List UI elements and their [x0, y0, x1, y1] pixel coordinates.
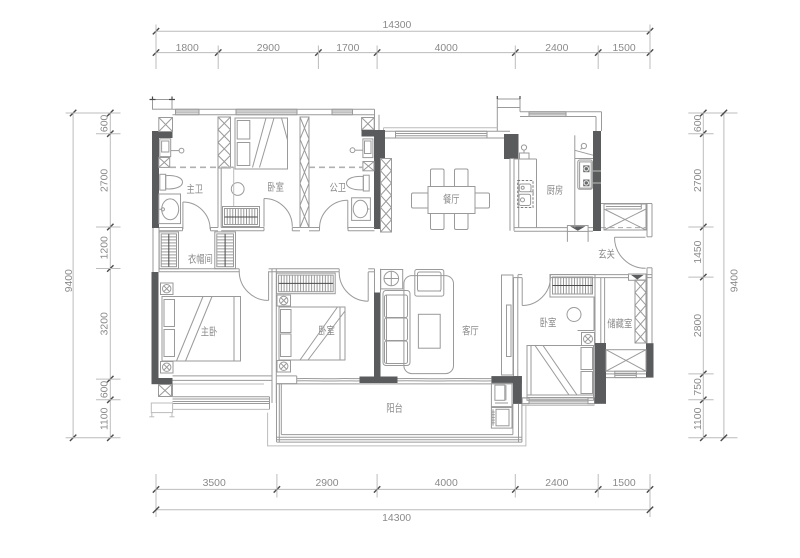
svg-text:750: 750 — [693, 378, 704, 396]
svg-text:厨房: 厨房 — [547, 184, 564, 197]
svg-text:600: 600 — [100, 115, 111, 133]
svg-text:公卫: 公卫 — [330, 182, 347, 194]
svg-text:主卫: 主卫 — [187, 184, 204, 196]
svg-text:阳台: 阳台 — [386, 401, 403, 414]
svg-text:1100: 1100 — [693, 407, 704, 430]
svg-text:3200: 3200 — [100, 312, 111, 335]
svg-text:600: 600 — [100, 381, 111, 399]
svg-text:2700: 2700 — [693, 169, 704, 192]
svg-text:2700: 2700 — [100, 169, 111, 192]
svg-text:卧室: 卧室 — [267, 180, 284, 193]
svg-text:2900: 2900 — [315, 478, 338, 489]
svg-text:2900: 2900 — [257, 43, 280, 54]
svg-text:2400: 2400 — [545, 43, 568, 54]
svg-text:1800: 1800 — [176, 43, 199, 54]
svg-text:卧室: 卧室 — [540, 316, 557, 329]
svg-text:1200: 1200 — [100, 236, 111, 259]
svg-text:客厅: 客厅 — [462, 324, 479, 337]
svg-text:1100: 1100 — [100, 407, 111, 430]
svg-text:14300: 14300 — [382, 20, 411, 31]
svg-text:14300: 14300 — [382, 513, 411, 524]
svg-text:1450: 1450 — [693, 240, 704, 263]
svg-text:衣帽间: 衣帽间 — [188, 253, 213, 266]
svg-text:600: 600 — [693, 115, 704, 133]
svg-text:储藏室: 储藏室 — [607, 317, 632, 330]
svg-text:1500: 1500 — [613, 43, 636, 54]
svg-text:餐厅: 餐厅 — [443, 193, 460, 206]
svg-text:9400: 9400 — [64, 269, 75, 292]
svg-text:2400: 2400 — [545, 478, 568, 489]
svg-text:主卧: 主卧 — [201, 325, 218, 338]
svg-text:4000: 4000 — [435, 478, 458, 489]
svg-text:4000: 4000 — [435, 43, 458, 54]
svg-text:1500: 1500 — [613, 478, 636, 489]
svg-text:1700: 1700 — [336, 43, 359, 54]
svg-text:9400: 9400 — [729, 269, 740, 292]
svg-text:3500: 3500 — [203, 478, 226, 489]
svg-text:玄关: 玄关 — [598, 248, 615, 261]
svg-text:2800: 2800 — [693, 314, 704, 337]
